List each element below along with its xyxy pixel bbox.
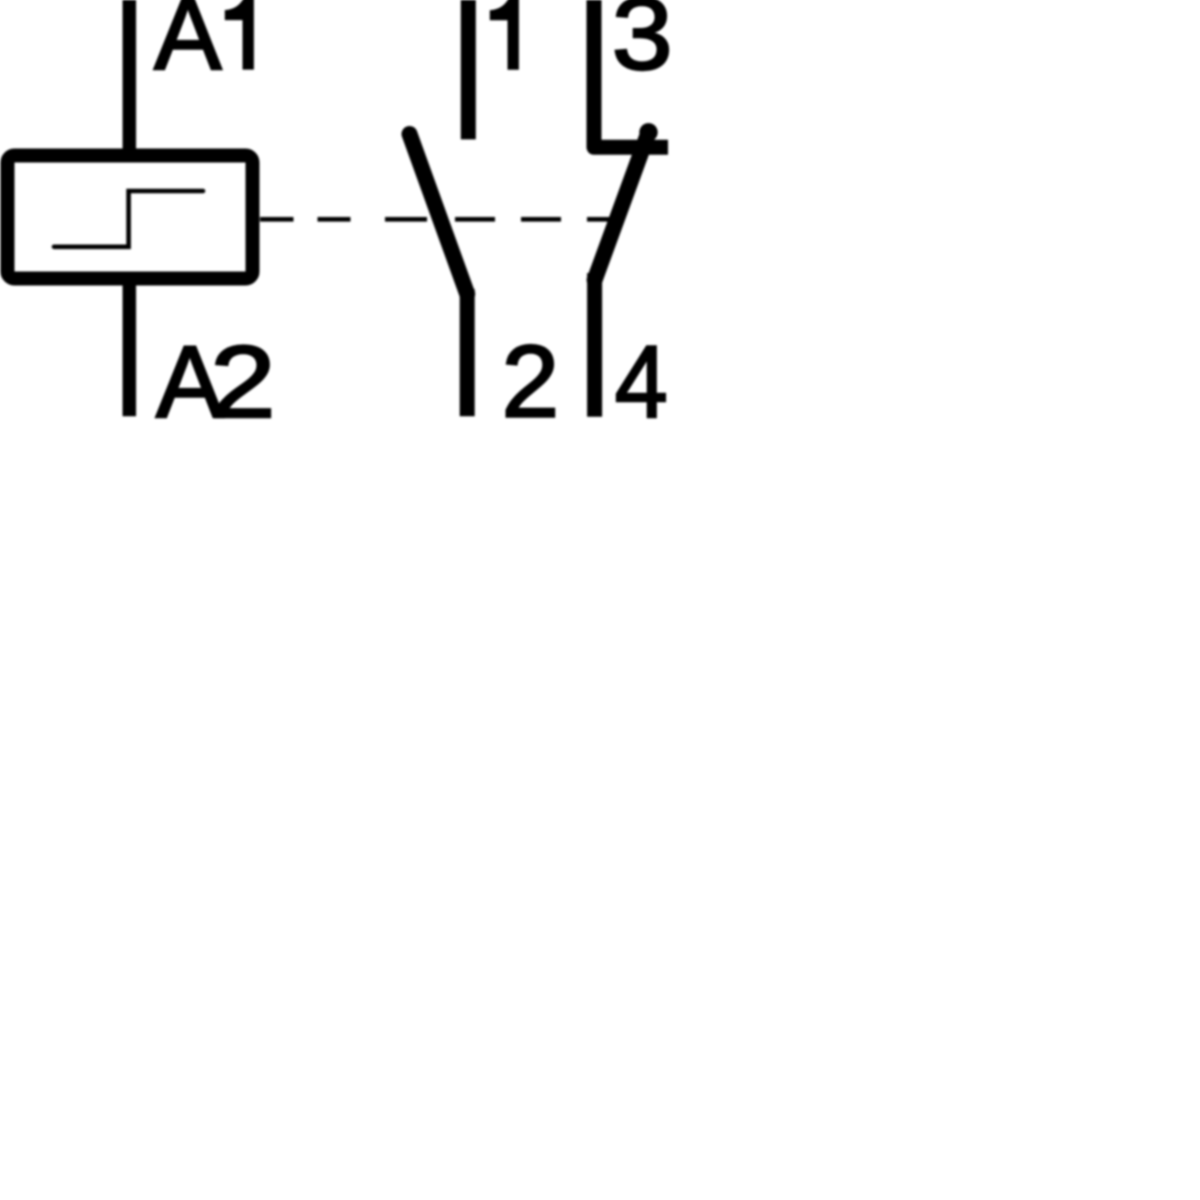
- svg-text:3: 3: [612, 0, 673, 91]
- svg-text:A: A: [154, 0, 222, 91]
- svg-text:2: 2: [502, 324, 560, 438]
- svg-text:4: 4: [615, 325, 668, 439]
- svg-text:2: 2: [210, 325, 276, 439]
